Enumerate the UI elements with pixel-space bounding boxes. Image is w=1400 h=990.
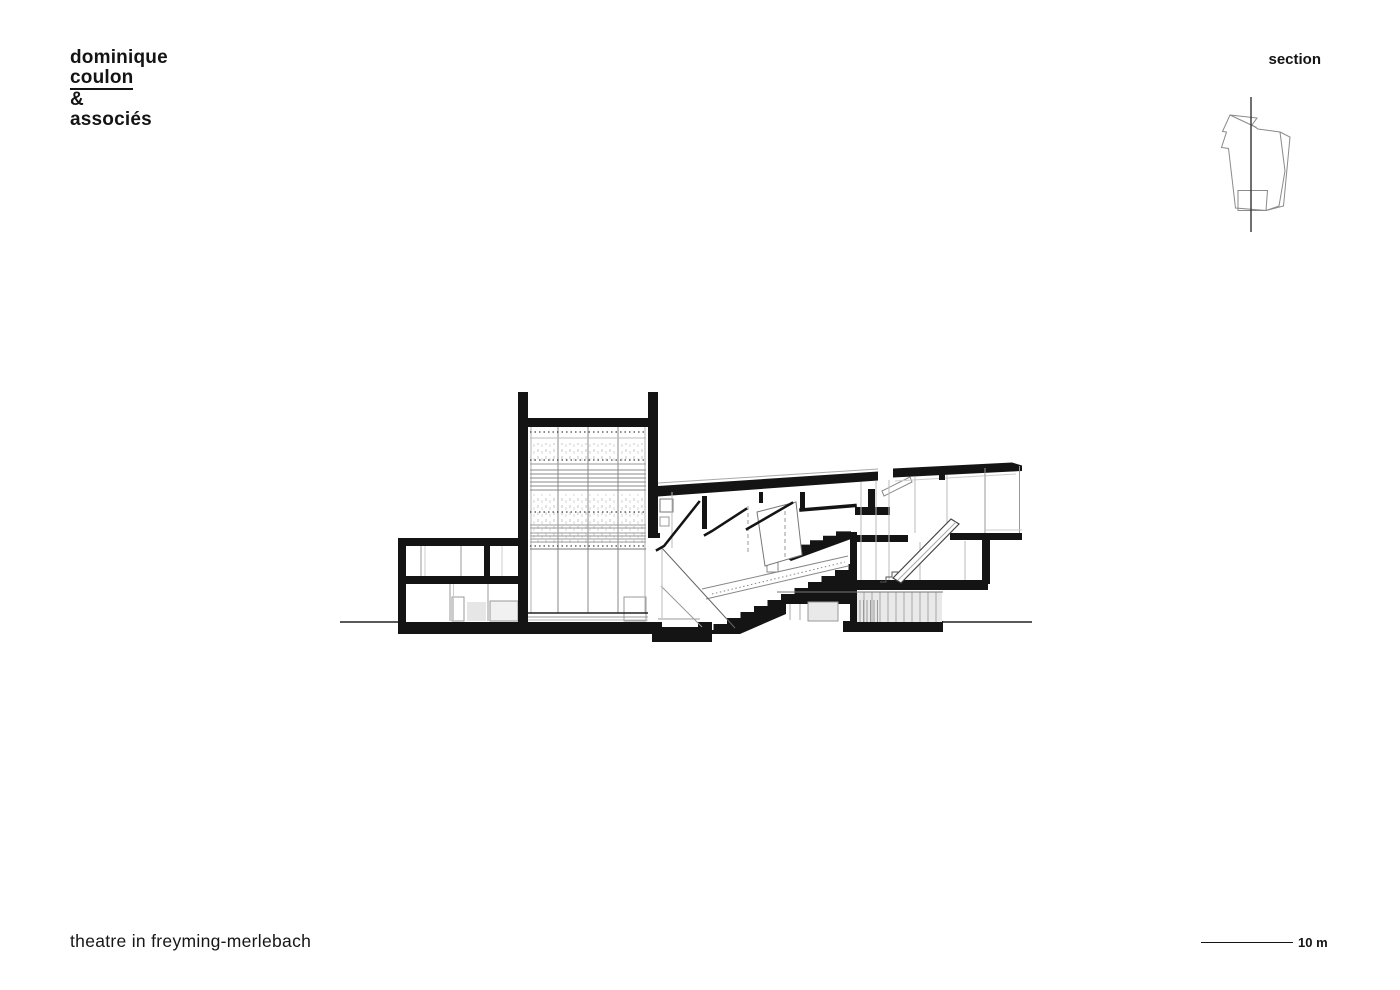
logo-line-4: associés xyxy=(70,110,168,130)
logo-line-3: & xyxy=(70,90,168,110)
foundation-slabs xyxy=(398,621,943,642)
scale-bar-label: 10 m xyxy=(1298,935,1328,950)
section-drawing xyxy=(335,385,1035,645)
roof xyxy=(658,463,1022,497)
project-title: theatre in freyming-merlebach xyxy=(70,931,311,952)
raked-seating-structure xyxy=(700,564,857,634)
view-label: section xyxy=(1268,51,1321,68)
under-seating-rooms xyxy=(790,602,838,621)
scale-bar xyxy=(1201,942,1293,943)
logo-line-1: dominique xyxy=(70,48,168,68)
key-plan xyxy=(1210,88,1320,243)
annex-furniture xyxy=(467,602,486,621)
fly-tower xyxy=(518,392,660,624)
key-plan-outline xyxy=(1222,115,1291,211)
architect-logo: dominique coulon & associés xyxy=(70,48,168,129)
logo-line-2: coulon xyxy=(70,68,133,91)
stage-floor xyxy=(528,613,648,620)
auditorium xyxy=(657,492,857,634)
drawing-sheet: { "page": { "background": "#ffffff", "in… xyxy=(0,0,1400,990)
